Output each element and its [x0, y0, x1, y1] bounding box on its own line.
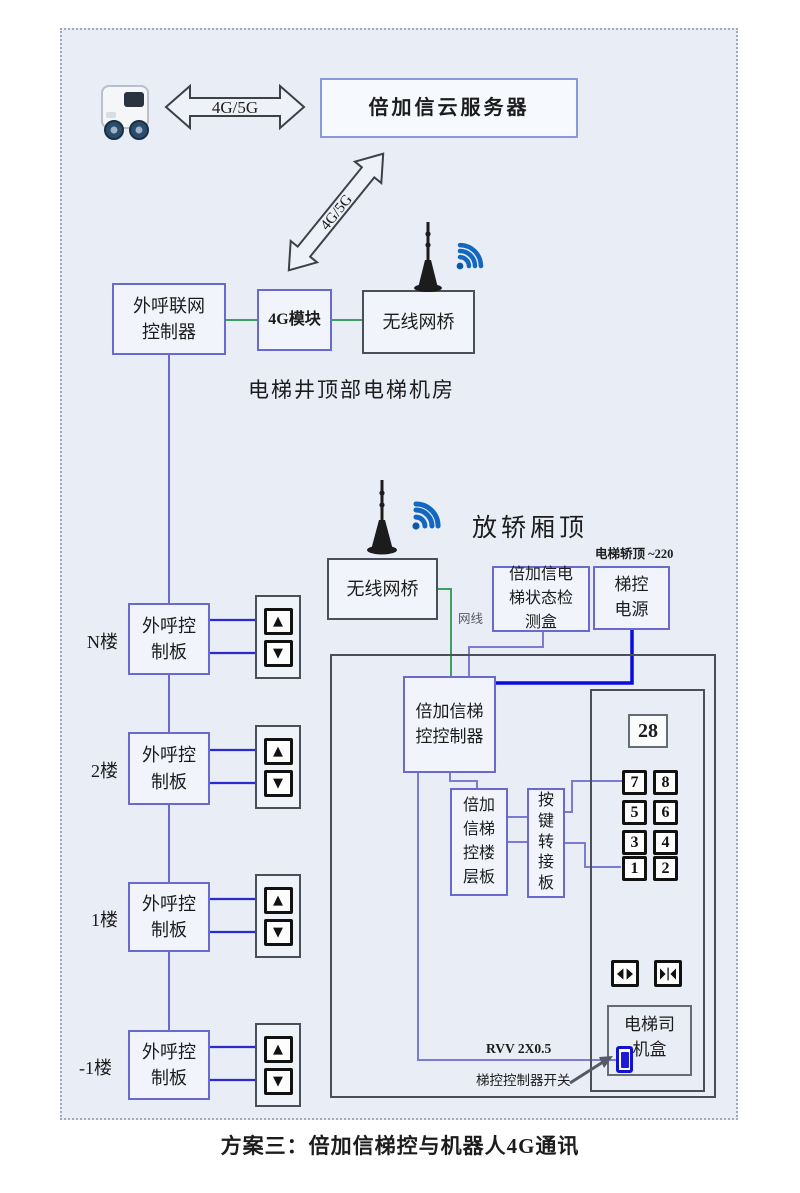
down-arrow-icon: ▼: [273, 777, 283, 790]
down-arrow-icon: ▼: [273, 1075, 283, 1088]
keypad-button-4: 4: [653, 830, 678, 855]
keypad-button-8: 8: [653, 770, 678, 795]
wireless-bridge-box-machine-room: 无线网桥: [362, 290, 475, 354]
call-board-box-1: 外呼控制板: [128, 882, 210, 952]
floor-label-1: 1楼: [60, 906, 118, 932]
key-adapter-box: 按键转接板: [527, 788, 565, 898]
up-arrow-icon: ▲: [273, 1043, 283, 1056]
door-open-button: [611, 960, 639, 987]
elevator-controller-label: 倍加信梯控控制器: [415, 700, 485, 749]
keypad-button-3: 3: [622, 830, 647, 855]
down-button: ▼: [264, 1068, 293, 1095]
keypad-button-5: 5: [622, 800, 647, 825]
up-arrow-icon: ▲: [273, 894, 283, 907]
up-arrow-icon: ▲: [273, 615, 283, 628]
elevator-power-box: 梯控电源: [593, 566, 670, 630]
down-button: ▼: [264, 919, 293, 946]
keypad-button-6: 6: [653, 800, 678, 825]
up-button: ▲: [264, 608, 293, 635]
keypad-button-1: 1: [622, 856, 647, 881]
floor-label-minus1: -1楼: [54, 1054, 112, 1080]
outbound-network-controller-box: 外呼联网控制器: [112, 283, 226, 355]
keypad-button-2: 2: [653, 856, 678, 881]
down-button: ▼: [264, 770, 293, 797]
cloud-server-box: 倍加信云服务器: [320, 78, 578, 138]
key-label: 1: [631, 860, 639, 878]
key-adapter-label: 按键转接板: [538, 791, 555, 895]
scheme-caption: 方案三：倍加信梯控与机器人4G通讯: [0, 1130, 800, 1160]
call-board-label: 外呼控制板: [140, 742, 198, 794]
floor-label-2: 2楼: [60, 757, 118, 783]
hall-button-panel-1: ▲ ▼: [255, 874, 301, 958]
up-arrow-icon: ▲: [273, 745, 283, 758]
key-label: 2: [662, 860, 670, 878]
floor-board-label: 倍加信梯控楼层板: [461, 794, 497, 890]
wireless-bridge-box-car-top: 无线网桥: [327, 558, 438, 620]
hall-button-panel-n: ▲ ▼: [255, 595, 301, 679]
down-button: ▼: [264, 640, 293, 667]
wireless-bridge-label: 无线网桥: [383, 309, 455, 335]
hall-button-panel-2: ▲ ▼: [255, 725, 301, 809]
door-close-button: [654, 960, 682, 987]
floor-label-n: N楼: [60, 628, 118, 654]
cable-label: 网线: [458, 608, 483, 627]
door-close-icon: [658, 966, 678, 982]
elevator-power-label: 梯控电源: [612, 573, 652, 622]
controller-switch-icon: [616, 1046, 633, 1073]
power-note: 电梯轿顶 ~220: [595, 543, 673, 562]
door-open-icon: [615, 966, 635, 982]
down-arrow-icon: ▼: [273, 647, 283, 660]
4g-module-box: 4G模块: [257, 289, 332, 351]
key-label: 7: [631, 774, 639, 792]
wireless-bridge-label: 无线网桥: [347, 576, 419, 602]
up-button: ▲: [264, 1036, 293, 1063]
up-button: ▲: [264, 887, 293, 914]
call-board-label: 外呼控制板: [140, 613, 198, 665]
4g-module-label: 4G模块: [268, 308, 320, 332]
down-arrow-icon: ▼: [273, 926, 283, 939]
up-button: ▲: [264, 738, 293, 765]
elevator-controller-box: 倍加信梯控控制器: [403, 676, 496, 773]
key-label: 6: [662, 804, 670, 822]
hall-button-panel-minus1: ▲ ▼: [255, 1023, 301, 1107]
keypad-button-7: 7: [622, 770, 647, 795]
outbound-network-controller-label: 外呼联网控制器: [131, 293, 207, 345]
key-label: 4: [662, 834, 670, 852]
switch-label: 梯控控制器开关: [476, 1069, 571, 1089]
call-board-label: 外呼控制板: [140, 1039, 198, 1091]
call-board-label: 外呼控制板: [140, 891, 198, 943]
rvv-wire-label: RVV 2X0.5: [486, 1041, 551, 1057]
call-board-box-n: 外呼控制板: [128, 603, 210, 675]
call-board-box-2: 外呼控制板: [128, 732, 210, 805]
cloud-server-label: 倍加信云服务器: [369, 94, 530, 123]
machine-room-caption: 电梯井顶部电梯机房: [248, 374, 455, 404]
diagram-page: 4G/5G 4G/5G: [0, 0, 800, 1193]
key-label: 8: [662, 774, 670, 792]
elevator-status-box: 倍加信电梯状态检测盒: [492, 566, 590, 632]
car-top-caption: 放轿厢顶: [472, 508, 588, 544]
call-board-box-minus1: 外呼控制板: [128, 1030, 210, 1100]
floor-display-value: 28: [638, 720, 658, 743]
key-label: 5: [631, 804, 639, 822]
floor-board-box: 倍加信梯控楼层板: [450, 788, 508, 896]
floor-display: 28: [628, 714, 668, 748]
key-label: 3: [631, 834, 639, 852]
floor-button-wires: [210, 620, 255, 1080]
elevator-status-label: 倍加信电梯状态检测盒: [508, 563, 574, 635]
